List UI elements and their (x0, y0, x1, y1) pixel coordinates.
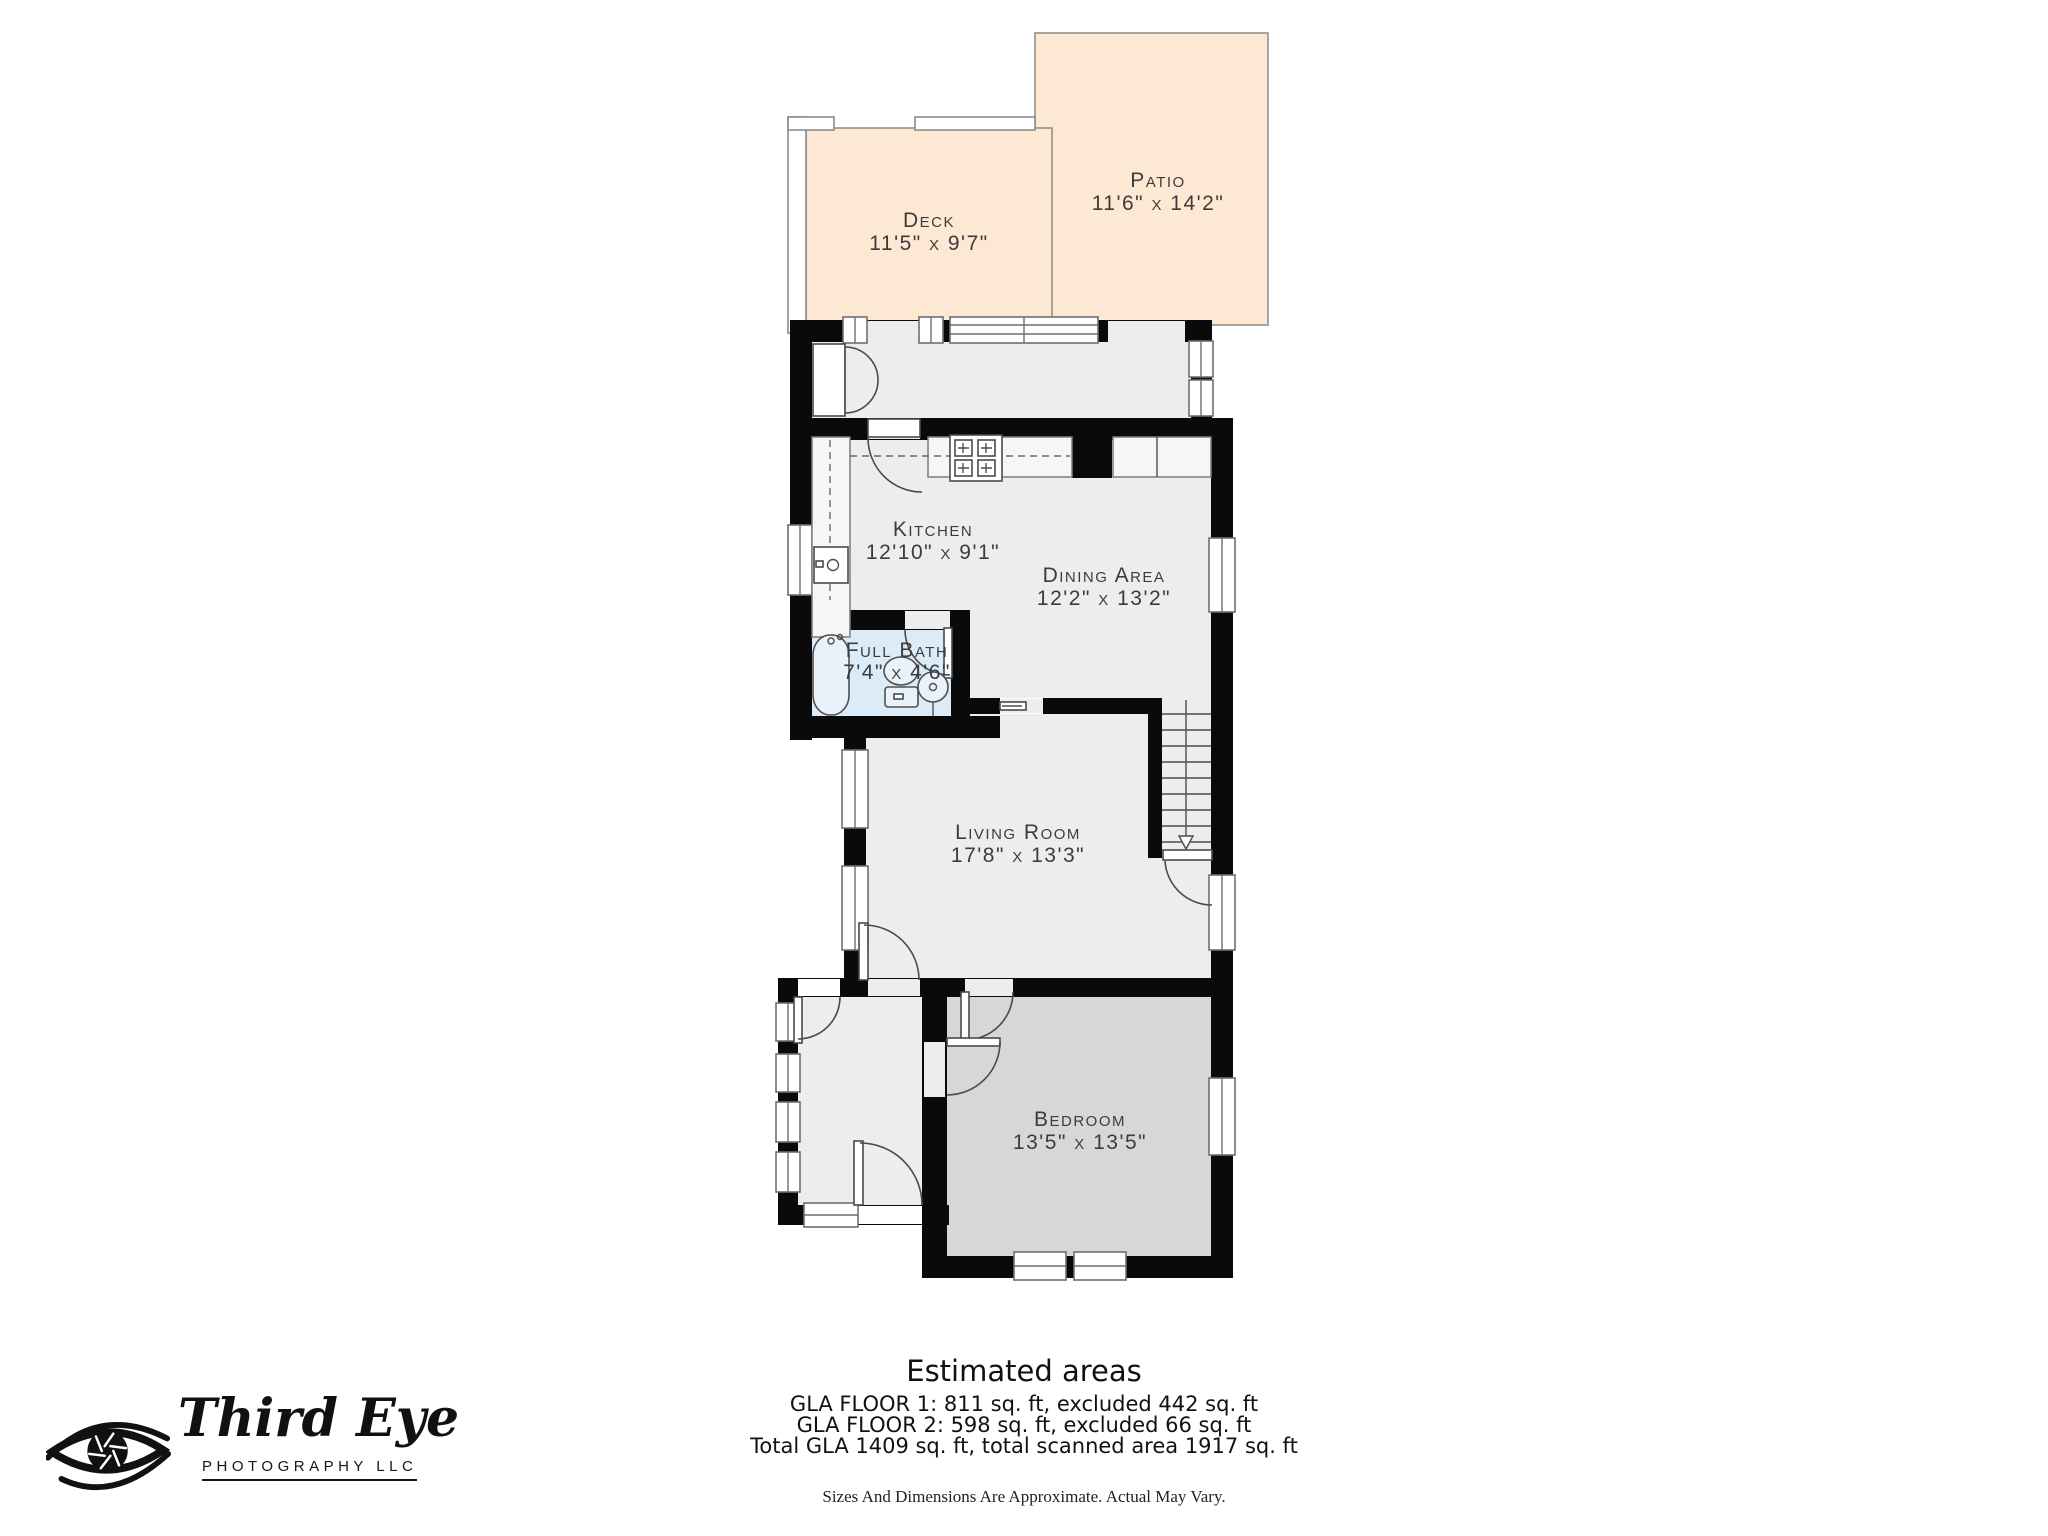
window (788, 525, 812, 595)
deck-rail (915, 117, 1035, 130)
window (776, 1152, 800, 1192)
bedroom-label: Bedroom (1034, 1108, 1126, 1131)
dining-label: Dining Area (1043, 564, 1166, 587)
floor-plan-page: Deck 11'5" x 9'7" Patio 11'6" x 14'2" Ki… (0, 0, 2048, 1536)
window (1189, 380, 1213, 416)
floor-plan-drawing: Deck 11'5" x 9'7" Patio 11'6" x 14'2" Ki… (0, 0, 2048, 1536)
dishwasher-icon (814, 547, 848, 583)
window (919, 317, 943, 343)
patio-label: Patio (1130, 169, 1185, 192)
window (1014, 1252, 1066, 1280)
window (1209, 1078, 1235, 1155)
logo-subtitle-text: PHOTOGRAPHY LLC (202, 1458, 417, 1481)
eye-aperture-logo-icon (46, 1408, 171, 1492)
window (1189, 341, 1213, 377)
threshold (1000, 702, 1026, 710)
patio-dims: 11'6" x 14'2" (1092, 192, 1225, 215)
dining-dims: 12'2" x 13'2" (1037, 587, 1171, 610)
window (776, 1054, 800, 1092)
photography-logo: Third Eye PHOTOGRAPHY LLC (46, 1402, 666, 1512)
estimated-areas-title: Estimated areas (0, 1354, 2048, 1388)
kitchen-dims: 12'10" x 9'1" (866, 541, 1000, 564)
dining-cabinet (1113, 437, 1211, 477)
window (842, 750, 868, 828)
window (843, 317, 867, 343)
living-label: Living Room (955, 821, 1081, 844)
bath-dims: 7'4" x 4'6" (843, 661, 951, 684)
living-dims: 17'8" x 13'3" (951, 844, 1085, 867)
chimney-stub (1072, 418, 1112, 478)
window (1074, 1252, 1126, 1280)
stove-icon (950, 435, 1002, 481)
window-wide (950, 317, 1098, 343)
window (1209, 875, 1235, 950)
window (1209, 538, 1235, 612)
kitchen-label: Kitchen (893, 518, 973, 541)
kitchen-counter-left (812, 437, 850, 637)
deck-rail (788, 117, 834, 130)
deck-label: Deck (903, 209, 955, 232)
hallway-floor (812, 340, 1191, 418)
window (804, 1203, 858, 1227)
deck-dims: 11'5" x 9'7" (869, 232, 988, 255)
window (776, 1102, 800, 1142)
bedroom-dims: 13'5" x 13'5" (1013, 1131, 1147, 1154)
deck-rail (788, 117, 806, 333)
logo-brand-text: Third Eye (178, 1388, 459, 1449)
bath-label: Full Bath (846, 639, 949, 662)
